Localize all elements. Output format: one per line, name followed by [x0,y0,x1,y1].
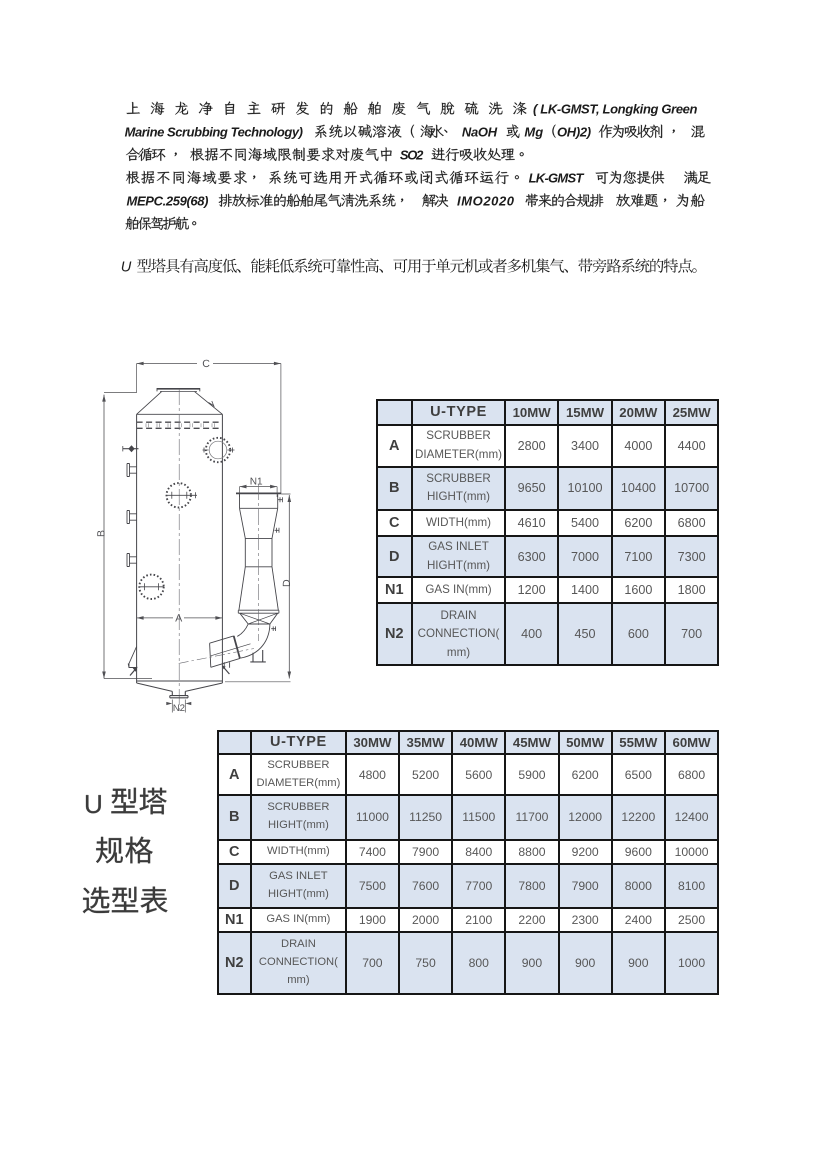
svg-text:U: U [121,260,132,276]
svg-text:OH)2): OH)2) [557,125,591,140]
svg-text:Mg: Mg [524,125,543,140]
svg-text:NaOH: NaOH [462,125,498,140]
svg-text:LK-GMST: LK-GMST [529,171,585,186]
svg-text:Marine Scrubbing Technology): Marine Scrubbing Technology) [125,125,303,140]
svg-text:SO2: SO2 [400,148,424,163]
svg-text:( LK-GMST, Longking Green: ( LK-GMST, Longking Green [533,102,698,117]
svg-text:IMO2020: IMO2020 [457,194,515,209]
svg-text:MEPC.259(68): MEPC.259(68) [127,194,209,209]
